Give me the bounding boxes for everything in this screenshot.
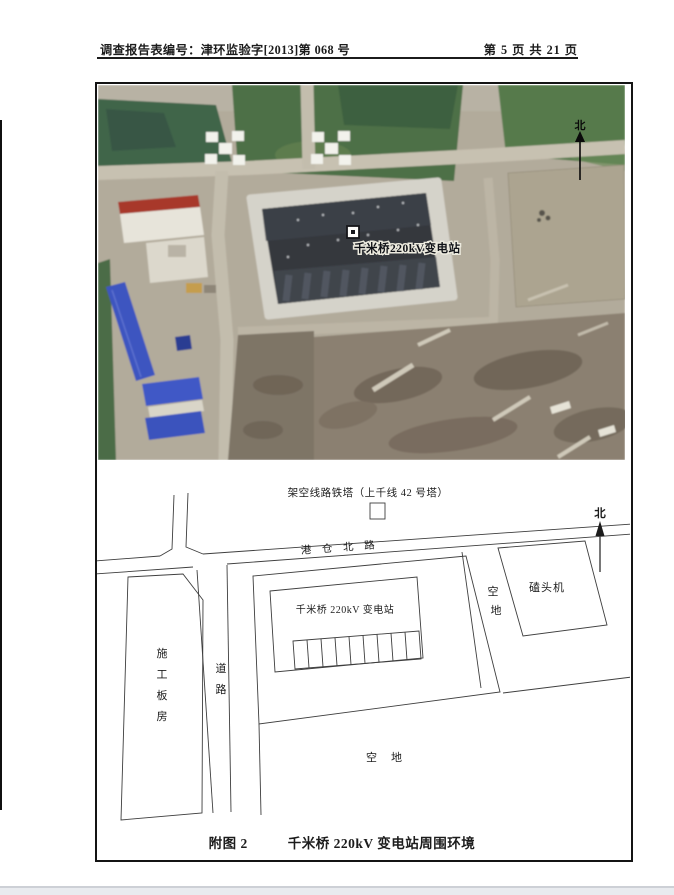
header-rule [97,57,578,59]
page-indicator: 第 5 页 共 21 页 [484,40,578,58]
scan-page-edge [0,120,2,810]
courtyard [168,245,186,257]
gray-shed [204,285,216,293]
site-diagram: 架空线路铁塔（上千线 42 号塔） 北 港 仓 北 路 千米桥 220kV 变电… [97,465,630,835]
scan-bottom-band [0,888,674,895]
station-marker-dot [351,230,355,234]
vacant-side-char: 空 [488,584,499,598]
tower-square [370,503,385,519]
road-name-label: 港 仓 北 路 [300,538,379,557]
figure-caption-title: 千米桥 220kV 变电站周围环境 [288,832,476,852]
tan-shed [186,283,202,293]
shed-label-char: 施 [157,647,168,660]
north-label: 北 [594,506,606,520]
dirt-blotch [253,375,303,395]
north-label: 北 [575,118,586,132]
vacant-corridor-edge [462,552,481,688]
well-spot [539,210,545,216]
road-label-char: 路 [216,683,227,696]
shed-label-char: 板 [157,688,168,702]
satellite-terrain [98,85,625,460]
road-top-left-edge [160,495,174,556]
road-label-char: 道 [216,661,227,675]
dirt-mid [228,331,314,460]
north-arrow-icon [596,521,605,536]
pumpjack-label: 磕头机 [529,580,565,594]
diagram-labels: 架空线路铁塔（上千线 42 号塔） 北 港 仓 北 路 千米桥 220kV 变电… [157,486,607,764]
figure-caption-number: 附图 2 [209,832,248,852]
field-center-dark-patch [338,85,458,129]
boundary-line-left [259,724,261,815]
substation-label: 千米桥 220kV 变电站 [296,603,395,616]
blue-hut [175,335,192,351]
well-spot [546,216,551,221]
satellite-image: 千米桥220kV变电站 北 [98,85,625,460]
side-road-left-edge [197,570,213,813]
station-label: 千米桥220kV变电站 [354,241,460,255]
white-building-wing [146,237,208,283]
road-top-right-edge [186,493,203,554]
road-vertical-left [218,171,227,460]
bay-dividers [307,632,407,668]
tower-label: 架空线路铁塔（上千线 42 号塔） [288,486,449,499]
figure-frame: 千米桥220kV变电站 北 [95,82,633,862]
road-vertical-top [307,85,309,169]
well-spot [537,218,541,222]
report-number: 调查报告表编号：津环监验字[2013]第 068 号 [100,40,350,58]
dirt-blotch [243,421,283,439]
bay-strip [293,631,421,669]
vacant-bottom-label: 空地 [366,750,416,764]
side-road-right-edge [227,565,231,812]
boundary-line-right [503,677,630,693]
main-road-bottom-edge [97,567,193,574]
vacant-side-char: 地 [491,604,502,617]
shed-label-char: 工 [157,669,168,681]
figure-caption: 附图 2 千米桥 220kV 变电站周围环境 [97,832,631,852]
shed-label-char: 房 [157,710,168,723]
substation-building-outline [270,577,423,672]
main-road-top-edge [97,556,160,561]
